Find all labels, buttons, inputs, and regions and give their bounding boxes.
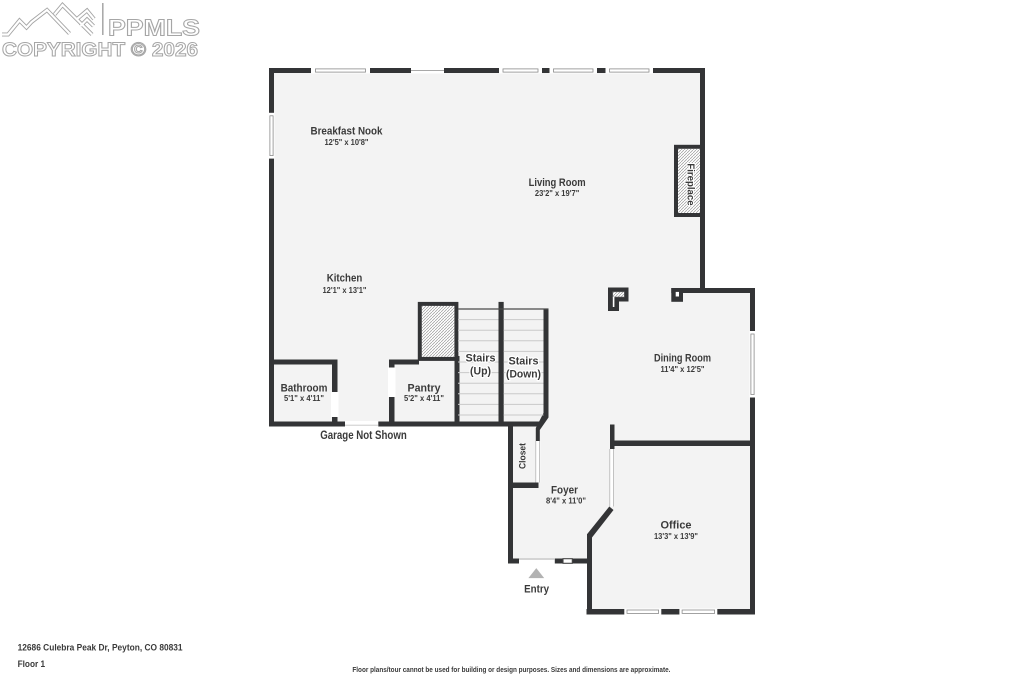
svg-text:12'5" x 10'8": 12'5" x 10'8" (325, 138, 369, 147)
svg-text:8'4" x 11'0": 8'4" x 11'0" (546, 497, 586, 506)
svg-text:Dining Room: Dining Room (654, 353, 711, 365)
svg-text:Foyer: Foyer (551, 484, 579, 496)
svg-text:Pantry: Pantry (408, 383, 442, 395)
svg-text:Entry: Entry (524, 584, 549, 596)
svg-text:11'4" x 12'5": 11'4" x 12'5" (661, 365, 705, 374)
svg-text:Stairs: Stairs (466, 352, 496, 364)
svg-text:Garage Not Shown: Garage Not Shown (320, 430, 407, 442)
svg-text:5'2" x 4'11": 5'2" x 4'11" (404, 394, 444, 403)
svg-text:12'1" x 13'1": 12'1" x 13'1" (323, 286, 367, 295)
svg-text:COPYRIGHT © 2026: COPYRIGHT © 2026 (2, 39, 198, 61)
svg-text:5'1" x 4'11": 5'1" x 4'11" (284, 394, 324, 403)
svg-text:(Down): (Down) (506, 368, 541, 380)
svg-text:12686 Culebra Peak Dr, Peyton,: 12686 Culebra Peak Dr, Peyton, CO 80831 (18, 642, 183, 652)
svg-text:PPMLS: PPMLS (108, 15, 200, 41)
svg-text:Closet: Closet (517, 443, 527, 469)
svg-text:Fireplace: Fireplace (685, 163, 696, 206)
svg-text:Bathroom: Bathroom (281, 383, 328, 395)
svg-text:23'2" x 19'7": 23'2" x 19'7" (535, 189, 579, 198)
svg-text:Kitchen: Kitchen (327, 273, 363, 285)
svg-text:13'3" x 13'9": 13'3" x 13'9" (654, 532, 698, 541)
svg-text:Floor plans/tour cannot be use: Floor plans/tour cannot be used for buil… (352, 667, 670, 674)
svg-text:(Up): (Up) (470, 365, 491, 377)
svg-text:Office: Office (661, 519, 692, 531)
svg-text:Living Room: Living Room (529, 177, 586, 189)
svg-text:Floor 1: Floor 1 (18, 659, 45, 669)
svg-text:Breakfast Nook: Breakfast Nook (311, 126, 384, 138)
svg-text:Stairs: Stairs (509, 355, 539, 367)
